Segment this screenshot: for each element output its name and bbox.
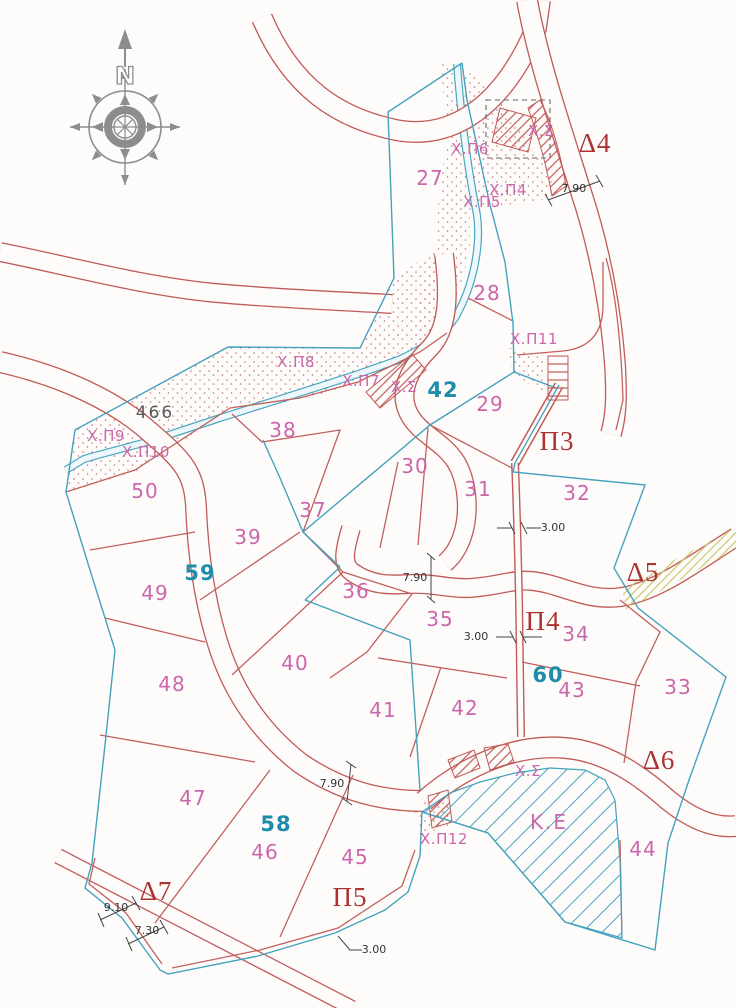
map-label-Κ.Ε: Κ.Ε (530, 810, 568, 834)
map-label-Χ.Π5: Χ.Π5 (463, 193, 501, 211)
map-label-Δ4: Δ4 (579, 128, 612, 158)
map-label-3.00: 3.00 (362, 943, 387, 956)
map-label-Δ6: Δ6 (643, 745, 676, 775)
map-label-Χ.Σ: Χ.Σ (391, 378, 417, 396)
settlement-boundary-cyan (66, 63, 726, 974)
map-label-Χ.Π12: Χ.Π12 (420, 830, 468, 848)
map-label-42: 42 (451, 696, 478, 720)
map-label-7.90: 7.90 (562, 182, 587, 195)
map-label-46: 46 (251, 840, 278, 864)
map-label-9.10: 9.10 (104, 901, 129, 914)
map-label-Χ.Π8: Χ.Π8 (277, 353, 315, 371)
map-label-31: 31 (464, 477, 491, 501)
map-label-Δ7: Δ7 (140, 876, 173, 906)
map-label-27: 27 (416, 166, 443, 190)
map-label-Χ.Π7: Χ.Π7 (342, 372, 380, 390)
map-label-Χ.Π10: Χ.Π10 (122, 443, 170, 461)
map-label-36: 36 (342, 579, 369, 603)
map-label-33: 33 (664, 675, 691, 699)
area-ke-hatch (422, 768, 622, 938)
map-label-38: 38 (269, 418, 296, 442)
map-label-Π5: Π5 (333, 882, 368, 912)
map-label-Χ.Σ: Χ.Σ (515, 762, 541, 780)
map-label-30: 30 (401, 454, 428, 478)
map-label-44: 44 (629, 837, 656, 861)
map-label-7.90: 7.90 (320, 777, 345, 790)
map-label-59: 59 (184, 561, 215, 585)
map-label-58: 58 (260, 812, 291, 836)
map-label-Δ5: Δ5 (627, 557, 660, 587)
map-label-47: 47 (179, 786, 206, 810)
map-label-45: 45 (341, 845, 368, 869)
cadastral-map-page: N 27282930313233343536373839404142434445… (0, 0, 736, 1008)
map-label-50: 50 (131, 479, 158, 503)
map-label-37: 37 (299, 498, 326, 522)
map-label-3.00: 3.00 (464, 630, 489, 643)
map-label-32: 32 (563, 481, 590, 505)
map-label-42: 42 (427, 378, 458, 402)
map-label-466: 466 (136, 403, 174, 423)
map-label-34: 34 (562, 622, 589, 646)
map-label-48: 48 (158, 672, 185, 696)
map-label-3.00: 3.00 (541, 521, 566, 534)
map-label-28: 28 (473, 281, 500, 305)
cadastral-map: N 27282930313233343536373839404142434445… (0, 0, 736, 1008)
map-label-49: 49 (141, 581, 168, 605)
map-label-7.30: 7.30 (135, 924, 160, 937)
compass-rose (70, 29, 180, 185)
map-label-60: 60 (532, 663, 563, 687)
map-label-Χ.Σ: Χ.Σ (528, 122, 554, 140)
map-label-Χ.Π11: Χ.Π11 (510, 330, 558, 348)
north-arrow-icon (118, 29, 132, 49)
map-label-40: 40 (281, 651, 308, 675)
map-label-7.90: 7.90 (403, 571, 428, 584)
map-label-Π4: Π4 (526, 606, 561, 636)
compass-north-letter: N (115, 62, 135, 90)
map-label-Χ.Π9: Χ.Π9 (87, 427, 125, 445)
map-label-Χ.Π6: Χ.Π6 (451, 140, 489, 158)
map-label-41: 41 (369, 698, 396, 722)
map-label-39: 39 (234, 525, 261, 549)
map-label-29: 29 (476, 392, 503, 416)
map-label-Π3: Π3 (540, 426, 575, 456)
map-label-35: 35 (426, 607, 453, 631)
